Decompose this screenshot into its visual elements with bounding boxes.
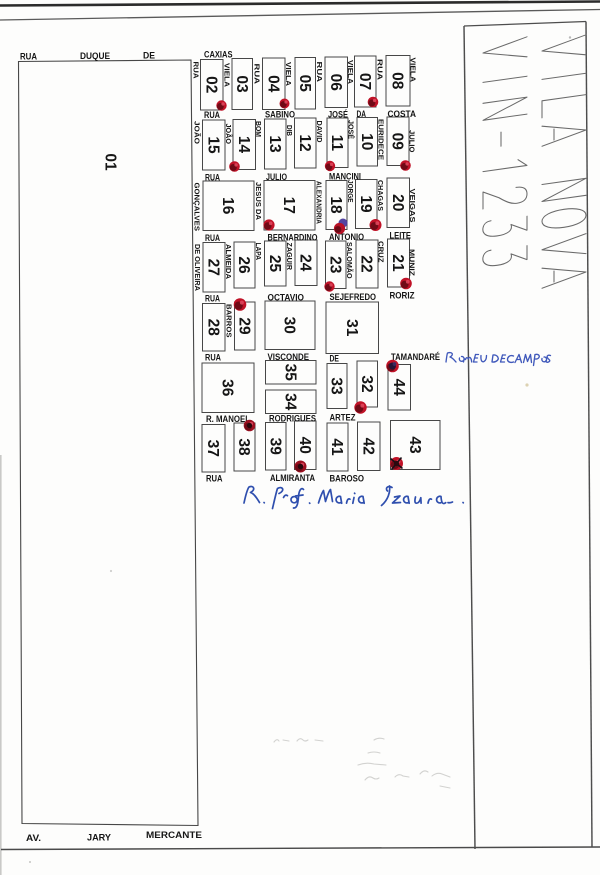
svg-text:37: 37 xyxy=(204,440,221,457)
svg-text:19: 19 xyxy=(357,195,374,213)
svg-text:24: 24 xyxy=(297,254,314,272)
svg-text:21: 21 xyxy=(389,254,406,272)
svg-text:JOÃO: JOÃO xyxy=(224,124,233,145)
svg-text:DE: DE xyxy=(143,51,155,61)
svg-text:36: 36 xyxy=(219,379,236,397)
svg-text:BARROS: BARROS xyxy=(224,304,233,338)
svg-text:43: 43 xyxy=(406,436,423,454)
svg-text:JARY: JARY xyxy=(87,833,111,843)
svg-text:R. MANOEL: R. MANOEL xyxy=(206,414,250,424)
svg-text:SABINO: SABINO xyxy=(265,110,295,120)
svg-text:DE: DE xyxy=(330,354,340,364)
svg-text:25: 25 xyxy=(266,255,283,273)
svg-text:39: 39 xyxy=(266,438,283,456)
svg-text:JULIO: JULIO xyxy=(266,172,287,182)
svg-text:11: 11 xyxy=(328,135,345,152)
svg-text:RUA: RUA xyxy=(191,62,200,80)
svg-text:RUA: RUA xyxy=(375,59,384,81)
svg-text:MERCANTE: MERCANTE xyxy=(146,830,202,840)
svg-text:44: 44 xyxy=(390,379,407,397)
svg-text:SALOMÃO: SALOMÃO xyxy=(345,242,354,279)
svg-text:CAXIAS: CAXIAS xyxy=(204,50,233,60)
svg-text:ARTEZ: ARTEZ xyxy=(330,413,356,423)
svg-text:OCTAVIO: OCTAVIO xyxy=(268,293,305,303)
svg-text:CHAGAS: CHAGAS xyxy=(376,180,385,211)
svg-text:RUA: RUA xyxy=(205,173,220,183)
svg-text:DA: DA xyxy=(357,109,367,119)
svg-text:05: 05 xyxy=(296,75,313,93)
svg-text:RORIZ: RORIZ xyxy=(390,291,415,301)
svg-text:RUA: RUA xyxy=(20,52,37,62)
svg-text:RUA: RUA xyxy=(252,64,261,85)
svg-text:GONÇALVES: GONÇALVES xyxy=(192,183,201,232)
svg-text:22: 22 xyxy=(358,255,375,272)
svg-text:ALEXANDRIA: ALEXANDRIA xyxy=(314,181,323,224)
svg-text:RUA: RUA xyxy=(206,474,223,484)
svg-text:JORGE: JORGE xyxy=(346,180,355,203)
svg-text:RUA: RUA xyxy=(205,233,220,243)
svg-text:BAROSO: BAROSO xyxy=(330,474,365,484)
svg-text:06: 06 xyxy=(327,74,344,92)
svg-text:VISCONDE: VISCONDE xyxy=(268,352,310,362)
svg-text:JOÃO: JOÃO xyxy=(192,121,201,144)
svg-text:SEJEFREDO: SEJEFREDO xyxy=(330,292,377,302)
svg-text:CRUZ: CRUZ xyxy=(376,241,385,263)
svg-text:RODRIGUES: RODRIGUES xyxy=(269,414,316,424)
svg-text:10: 10 xyxy=(358,133,375,150)
svg-text:42: 42 xyxy=(359,438,376,455)
svg-text:DE OLIVEIRA: DE OLIVEIRA xyxy=(193,244,202,291)
svg-text:BOM: BOM xyxy=(254,121,263,137)
svg-text:JOSÉ: JOSÉ xyxy=(346,120,355,139)
svg-text:RUA: RUA xyxy=(205,353,221,363)
svg-text:ALMIRANTA: ALMIRANTA xyxy=(270,473,315,483)
svg-text:JOSÉ: JOSÉ xyxy=(328,110,348,120)
svg-text:VIELA: VIELA xyxy=(222,63,231,88)
svg-text:01: 01 xyxy=(102,153,119,171)
svg-text:14: 14 xyxy=(235,136,252,154)
svg-text:26: 26 xyxy=(235,256,252,274)
svg-text:LAPA: LAPA xyxy=(254,243,263,261)
svg-text:02: 02 xyxy=(202,76,219,93)
svg-text:BERNARDINO: BERNARDINO xyxy=(268,233,318,243)
svg-text:VIELA: VIELA xyxy=(284,62,293,87)
svg-text:27: 27 xyxy=(205,259,222,276)
svg-text:29: 29 xyxy=(235,317,252,335)
svg-text:18: 18 xyxy=(327,196,344,214)
svg-text:34: 34 xyxy=(281,393,298,411)
svg-text:30: 30 xyxy=(281,317,298,334)
svg-text:MANCINI: MANCINI xyxy=(329,172,361,182)
svg-text:JULIO: JULIO xyxy=(407,130,416,153)
svg-text:13: 13 xyxy=(266,135,283,153)
svg-text:ZAGUIR: ZAGUIR xyxy=(285,243,294,271)
svg-text:DIB: DIB xyxy=(285,125,294,136)
svg-text:03: 03 xyxy=(233,75,250,93)
svg-text:04: 04 xyxy=(264,75,281,93)
svg-text:DUQUE: DUQUE xyxy=(80,51,110,61)
svg-text:JESUS DA: JESUS DA xyxy=(254,182,263,221)
svg-text:09: 09 xyxy=(389,133,406,151)
svg-text:RUA: RUA xyxy=(315,62,324,83)
svg-text:12: 12 xyxy=(296,134,313,151)
svg-text:38: 38 xyxy=(235,438,252,456)
svg-text:07: 07 xyxy=(356,73,373,90)
svg-text:08: 08 xyxy=(389,72,406,90)
svg-text:28: 28 xyxy=(204,319,221,337)
svg-text:41: 41 xyxy=(328,438,345,456)
svg-text:15: 15 xyxy=(204,136,221,154)
svg-text:RUA: RUA xyxy=(204,110,220,120)
svg-text:35: 35 xyxy=(281,364,298,382)
svg-text:DAVID: DAVID xyxy=(315,121,324,143)
svg-text:33: 33 xyxy=(328,377,345,395)
svg-text:32: 32 xyxy=(358,375,375,392)
svg-text:ANTONIO: ANTONIO xyxy=(329,232,364,242)
svg-text:16: 16 xyxy=(219,197,236,215)
svg-text:40: 40 xyxy=(296,437,313,454)
svg-text:23: 23 xyxy=(326,256,343,274)
svg-text:COSTA: COSTA xyxy=(388,109,417,119)
svg-text:TAMANDARÉ: TAMANDARÉ xyxy=(391,352,440,362)
svg-text:VIELA: VIELA xyxy=(346,60,355,85)
svg-text:RUA: RUA xyxy=(205,294,220,304)
svg-text:VIELA: VIELA xyxy=(408,58,417,83)
svg-text:17: 17 xyxy=(280,197,297,214)
svg-text:MUNIZ: MUNIZ xyxy=(407,249,416,276)
svg-text:20: 20 xyxy=(389,194,406,211)
svg-text:EURIDECE: EURIDECE xyxy=(376,119,385,160)
svg-text:31: 31 xyxy=(343,319,360,337)
svg-text:AV.: AV. xyxy=(26,833,41,843)
svg-text:LEITE: LEITE xyxy=(390,231,412,241)
svg-text:VEIGAS: VEIGAS xyxy=(408,189,417,223)
svg-text:ALMEIDA: ALMEIDA xyxy=(224,244,233,280)
